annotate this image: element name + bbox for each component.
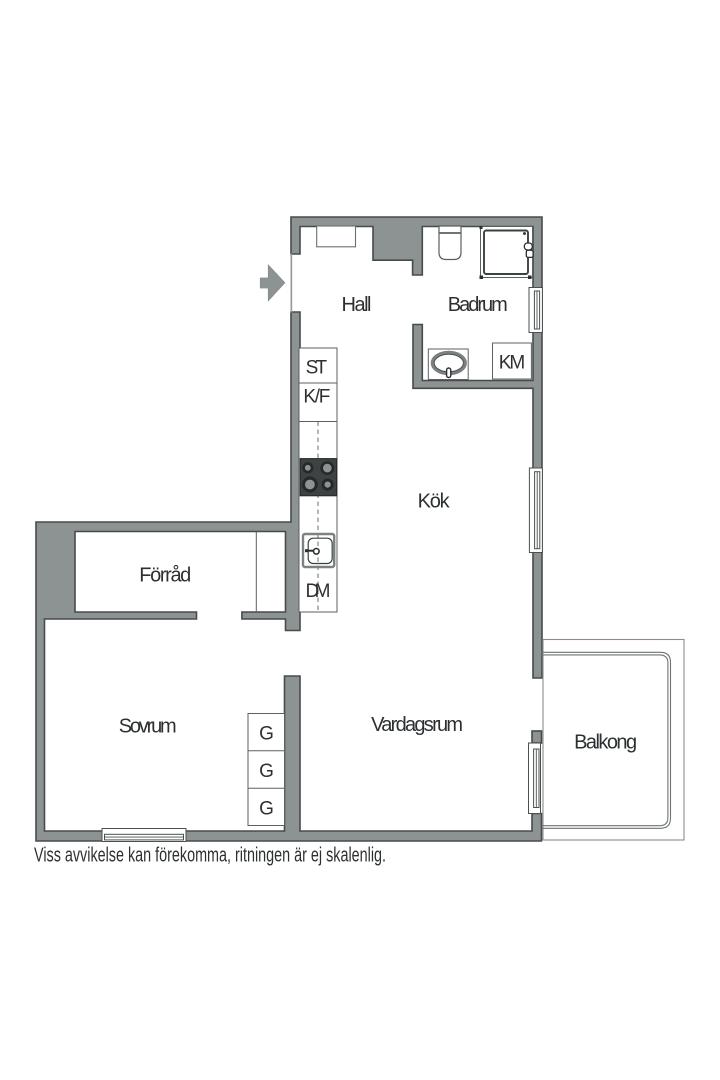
svg-text:ST: ST — [306, 358, 328, 379]
svg-text:Hall: Hall — [342, 294, 372, 316]
svg-text:Sovrum: Sovrum — [119, 716, 177, 738]
svg-text:G: G — [259, 761, 274, 782]
svg-text:G: G — [259, 724, 274, 745]
svg-text:Badrum: Badrum — [448, 294, 508, 316]
svg-text:Balkong: Balkong — [574, 732, 637, 754]
svg-text:Förråd: Förråd — [139, 565, 191, 587]
svg-text:Kök: Kök — [418, 491, 451, 513]
svg-text:DM: DM — [306, 581, 331, 602]
svg-text:Vardagsrum: Vardagsrum — [371, 714, 463, 736]
svg-text:KM: KM — [499, 353, 526, 374]
svg-text:Viss avvikelse kan förekomma,: Viss avvikelse kan förekomma, ritningen … — [34, 845, 386, 867]
svg-text:K/F: K/F — [303, 387, 330, 408]
svg-text:G: G — [259, 799, 274, 820]
